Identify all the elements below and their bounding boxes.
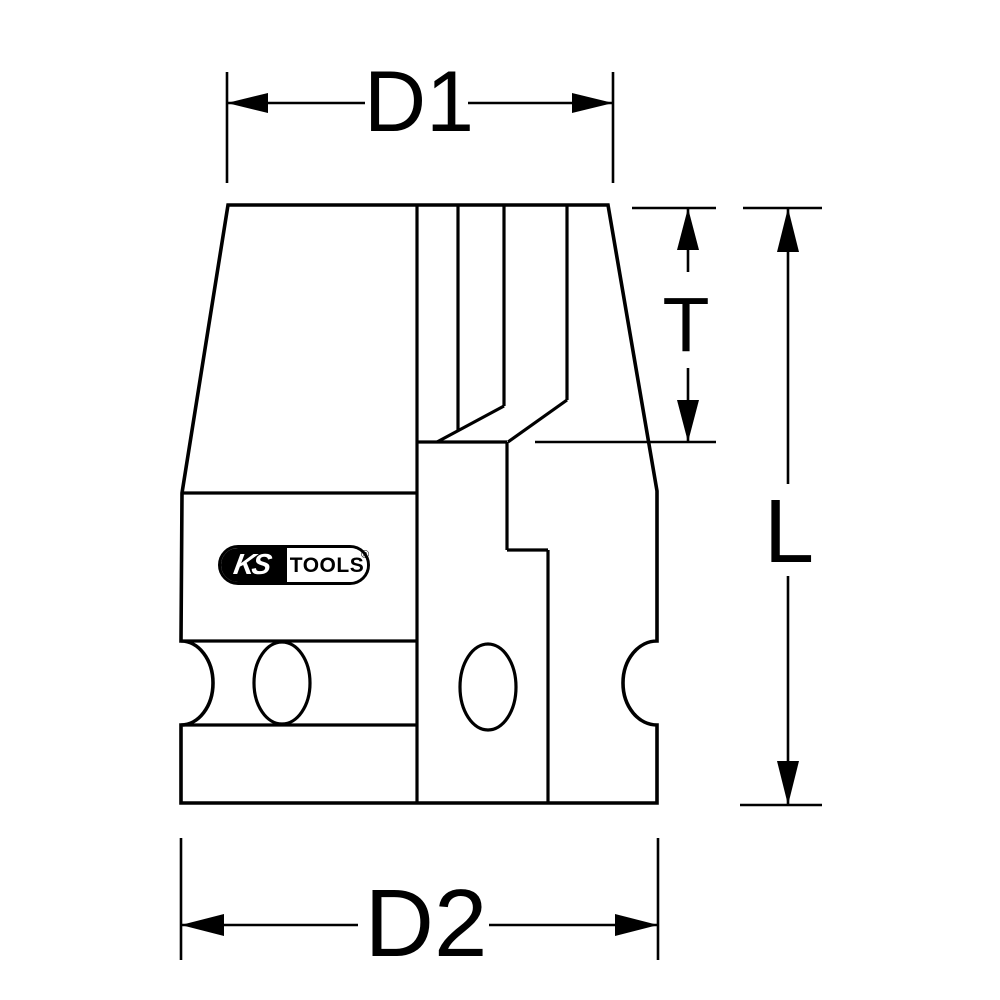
dimension-label-l: L	[764, 482, 814, 582]
d2-arrowhead-left	[181, 914, 224, 936]
logo-tools-section: TOOLS	[287, 548, 367, 582]
technical-drawing-canvas: D1 T L D2	[0, 0, 1000, 1000]
hex-floor-diagonal-2	[508, 400, 567, 442]
l-arrowhead-up	[777, 208, 799, 252]
logo-ks-section: KS	[221, 548, 287, 582]
ks-tools-logo: KS TOOLS	[218, 545, 370, 585]
d1-arrowhead-right	[572, 93, 613, 113]
dimension-label-t: T	[662, 282, 709, 368]
d1-arrowhead-left	[227, 93, 268, 113]
t-arrowhead-up	[677, 208, 699, 250]
hex-floor-diagonal-1	[437, 406, 504, 442]
dimension-label-d1: D1	[364, 54, 474, 150]
logo-tools-text: TOOLS	[290, 555, 364, 576]
pin-hole-left	[254, 642, 310, 724]
socket-body-outline	[181, 205, 657, 803]
registered-trademark-icon: ®	[361, 549, 369, 561]
l-arrowhead-down	[777, 761, 799, 805]
dimension-label-d2: D2	[365, 870, 488, 977]
pin-hole-right	[460, 644, 516, 730]
logo-ks-text: KS	[232, 551, 276, 580]
t-arrowhead-down	[677, 400, 699, 442]
socket-dimension-drawing: D1 T L D2	[0, 0, 1000, 1000]
d2-arrowhead-right	[615, 914, 658, 936]
